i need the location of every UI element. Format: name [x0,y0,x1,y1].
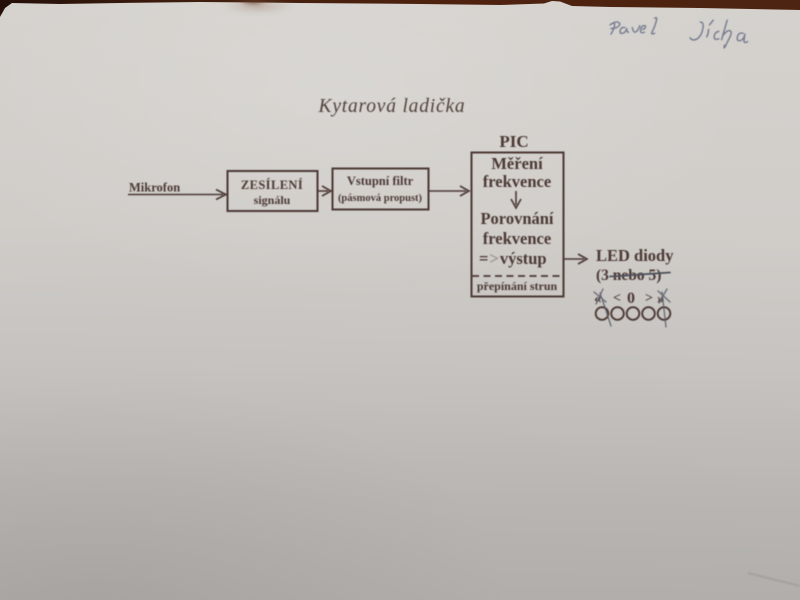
svg-text:Měření: Měření [491,154,543,173]
svg-text:LED diody: LED diody [596,246,674,265]
svg-text:0: 0 [627,290,635,307]
svg-text:signálu: signálu [254,193,291,207]
svg-text:PIC: PIC [499,132,528,151]
svg-text:přepínání strun: přepínání strun [477,279,558,293]
svg-text:frekvence: frekvence [483,172,551,191]
svg-text:(pásmová propust): (pásmová propust) [338,193,423,204]
svg-text:Kytarová ladička: Kytarová ladička [318,96,466,117]
svg-text:Mikrofon: Mikrofon [129,181,180,195]
svg-text:Porovnání: Porovnání [480,209,553,228]
svg-text:ZESÍLENÍ: ZESÍLENÍ [241,178,303,192]
svg-text:frekvence: frekvence [483,229,551,248]
svg-text:Vstupní filtr: Vstupní filtr [347,174,414,188]
svg-text:=>výstup: =>výstup [479,249,547,268]
svg-text:<: < [613,291,621,306]
svg-text:>: > [645,291,653,306]
